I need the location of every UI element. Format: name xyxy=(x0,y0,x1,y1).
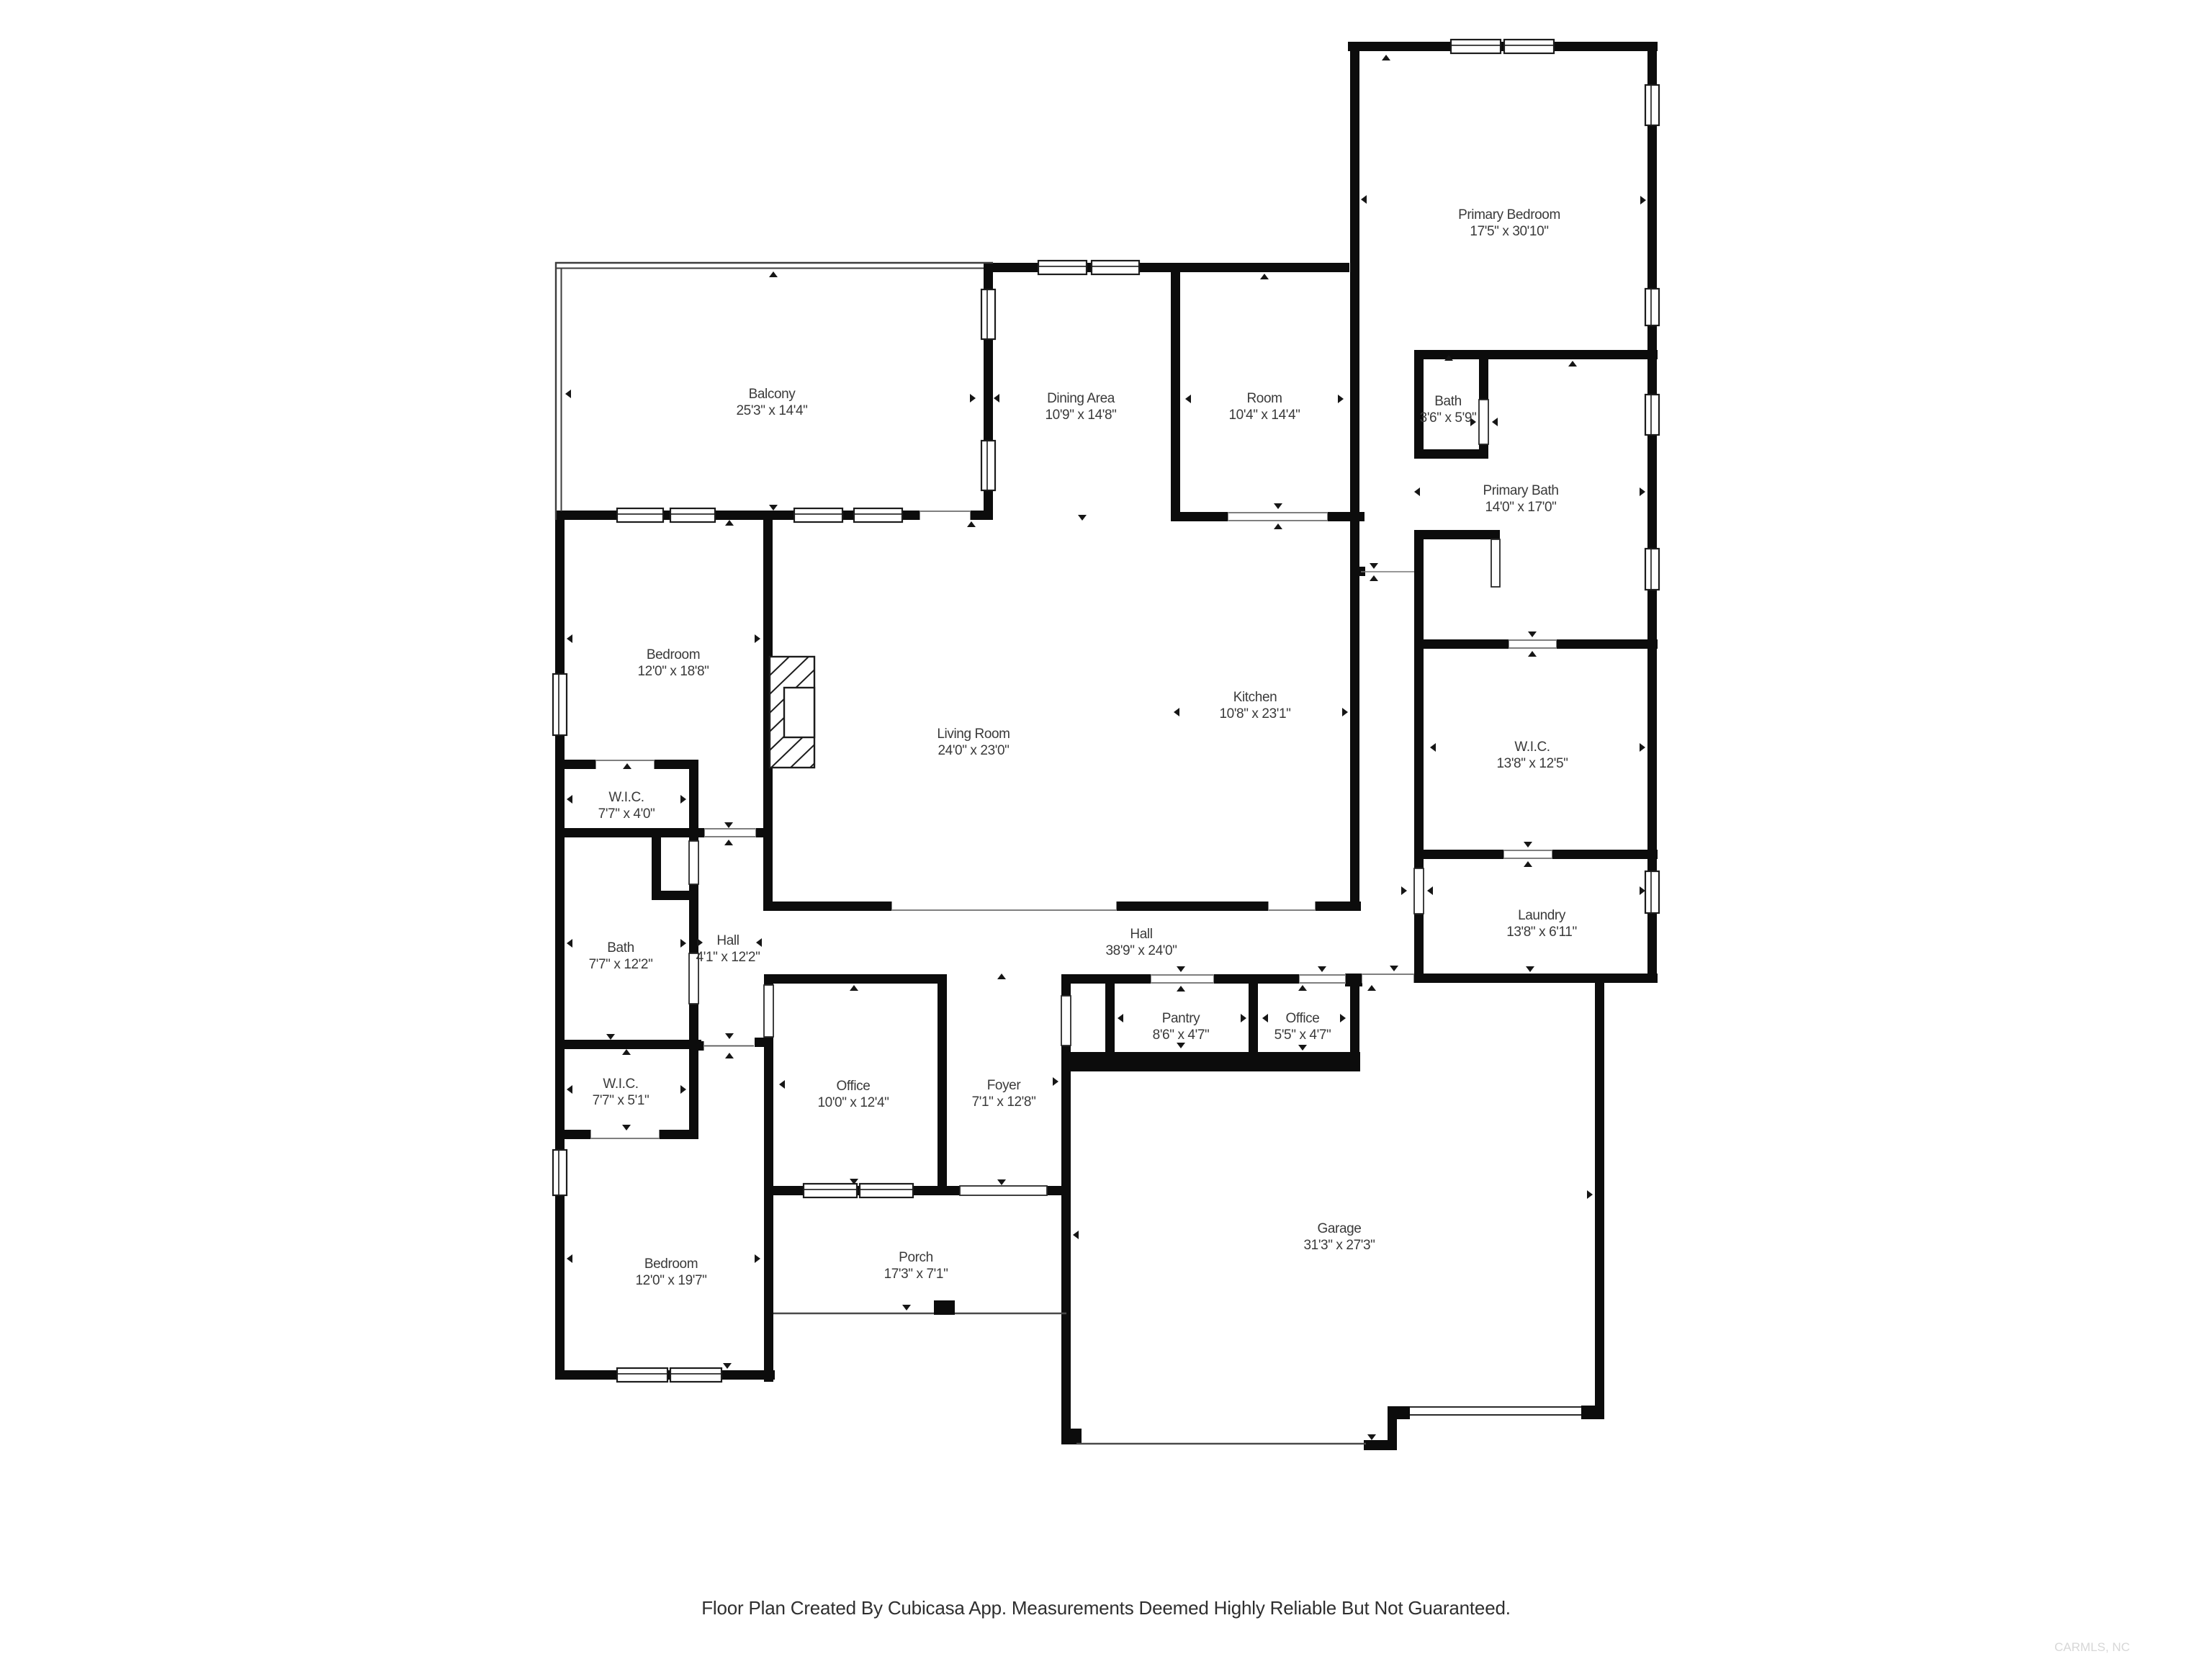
svg-text:Primary Bedroom: Primary Bedroom xyxy=(1458,207,1560,222)
svg-text:Pantry: Pantry xyxy=(1162,1011,1200,1026)
svg-text:W.I.C.: W.I.C. xyxy=(603,1076,638,1092)
svg-text:Hall: Hall xyxy=(716,933,739,948)
svg-text:13'8" x 6'11": 13'8" x 6'11" xyxy=(1506,925,1577,940)
svg-text:Room: Room xyxy=(1246,391,1282,406)
svg-text:Bath: Bath xyxy=(607,940,634,956)
svg-text:10'8" x 23'1": 10'8" x 23'1" xyxy=(1219,706,1290,721)
svg-text:7'7" x 5'1": 7'7" x 5'1" xyxy=(593,1093,649,1108)
svg-text:17'3" x 7'1": 17'3" x 7'1" xyxy=(884,1267,948,1282)
svg-text:25'3" x 14'4": 25'3" x 14'4" xyxy=(736,403,807,418)
svg-text:24'0" x 23'0": 24'0" x 23'0" xyxy=(938,743,1009,758)
svg-text:Laundry: Laundry xyxy=(1518,908,1566,923)
svg-text:W.I.C.: W.I.C. xyxy=(608,790,644,805)
svg-text:12'0" x 19'7": 12'0" x 19'7" xyxy=(635,1273,706,1288)
svg-text:Hall: Hall xyxy=(1130,927,1152,942)
svg-text:Bedroom: Bedroom xyxy=(647,647,700,662)
svg-text:17'5" x 30'10": 17'5" x 30'10" xyxy=(1470,224,1548,239)
svg-text:5'5" x 4'7": 5'5" x 4'7" xyxy=(1274,1028,1331,1043)
svg-text:7'1" x 12'8": 7'1" x 12'8" xyxy=(972,1094,1036,1110)
svg-text:10'0" x 12'4": 10'0" x 12'4" xyxy=(817,1095,889,1110)
svg-text:13'8" x 12'5": 13'8" x 12'5" xyxy=(1496,756,1568,771)
svg-text:Dining Area: Dining Area xyxy=(1047,391,1115,406)
svg-text:Balcony: Balcony xyxy=(749,387,796,402)
svg-text:Bedroom: Bedroom xyxy=(644,1256,698,1272)
svg-text:8'6" x 4'7": 8'6" x 4'7" xyxy=(1153,1028,1210,1043)
svg-text:10'4" x 14'4": 10'4" x 14'4" xyxy=(1228,408,1300,423)
svg-text:Kitchen: Kitchen xyxy=(1233,690,1277,705)
svg-text:10'9" x 14'8": 10'9" x 14'8" xyxy=(1045,408,1116,423)
svg-text:12'0" x 18'8": 12'0" x 18'8" xyxy=(637,664,709,679)
svg-text:Foyer: Foyer xyxy=(987,1078,1022,1093)
svg-text:3'6" x 5'9": 3'6" x 5'9" xyxy=(1420,410,1477,426)
svg-text:31'3" x 27'3": 31'3" x 27'3" xyxy=(1303,1238,1375,1253)
svg-text:Bath: Bath xyxy=(1434,394,1462,409)
svg-text:Office: Office xyxy=(1286,1011,1320,1026)
svg-text:14'0" x 17'0": 14'0" x 17'0" xyxy=(1485,500,1556,515)
svg-text:Porch: Porch xyxy=(899,1250,933,1265)
svg-text:7'7" x 4'0": 7'7" x 4'0" xyxy=(598,806,655,822)
svg-text:W.I.C.: W.I.C. xyxy=(1514,739,1550,755)
svg-text:Office: Office xyxy=(837,1079,871,1094)
svg-text:Garage: Garage xyxy=(1318,1221,1362,1236)
svg-text:38'9" x 24'0": 38'9" x 24'0" xyxy=(1105,943,1177,958)
svg-text:Primary Bath: Primary Bath xyxy=(1483,483,1558,498)
svg-text:CARMLS, NC: CARMLS, NC xyxy=(2054,1640,2130,1654)
svg-text:Living Room: Living Room xyxy=(937,727,1010,742)
svg-text:4'1" x 12'2": 4'1" x 12'2" xyxy=(696,950,760,965)
svg-text:Floor Plan Created By Cubicasa: Floor Plan Created By Cubicasa App. Meas… xyxy=(701,1597,1511,1619)
svg-text:7'7" x 12'2": 7'7" x 12'2" xyxy=(589,957,653,972)
